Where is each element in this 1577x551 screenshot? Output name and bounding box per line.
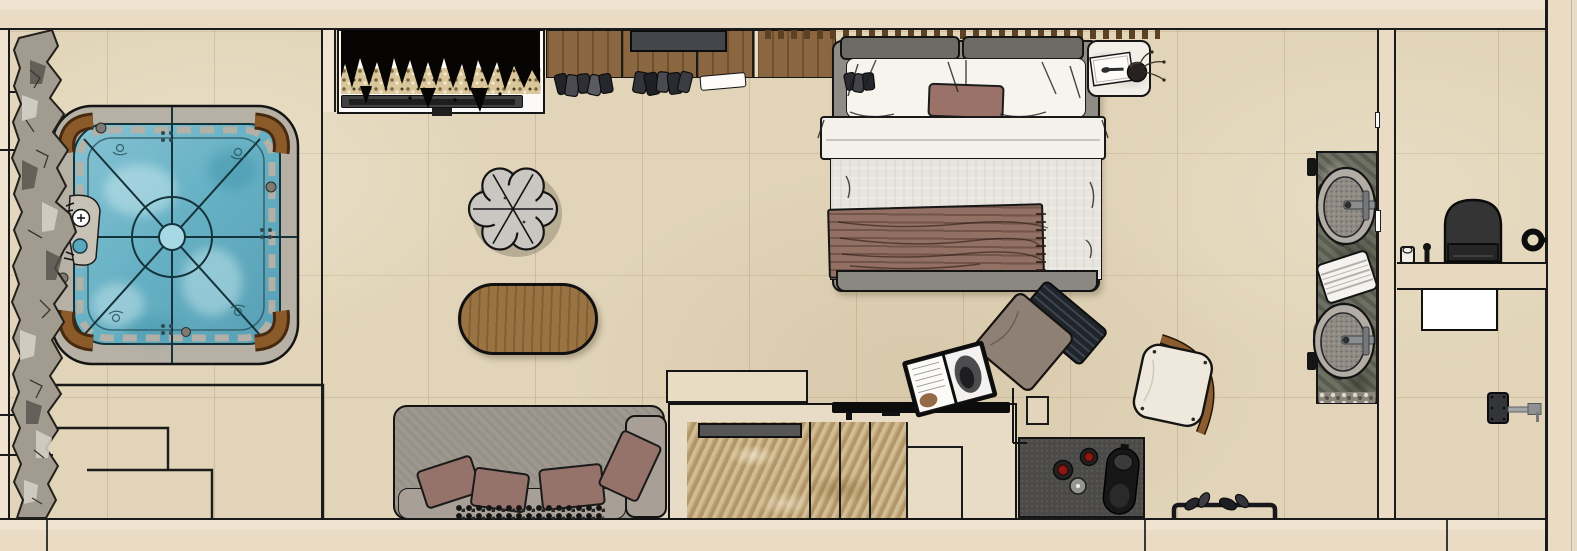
island-wall-nib [1013,388,1027,443]
vessel-sink-2 [1314,304,1375,380]
open-magazine [902,340,998,418]
nightstand-decor [1090,50,1166,85]
throw-creases [838,222,1048,269]
hot-tub [52,106,298,364]
slipper-rack [1174,491,1275,518]
flower-pouf [469,169,562,258]
shower-arm [1488,393,1541,423]
stool [1130,336,1220,434]
hanging-clothes [554,71,875,97]
toilet-brush [1423,243,1431,263]
kettle [1102,443,1141,516]
island-appliances [1013,388,1141,515]
terrace-steps [50,385,323,519]
detail-overlay [0,0,1577,551]
canister-lid [1403,247,1412,253]
desk-chair [973,280,1108,392]
towel-stack [1316,250,1378,304]
tub-center-jet [159,224,185,250]
vessel-sink-1 [1317,168,1376,246]
floor-plan-canvas [0,0,1577,551]
toilet [1445,200,1501,262]
throw-fringe [1036,214,1046,270]
door-knob [1525,232,1548,249]
planter-foliage [341,30,540,112]
island-nib-box [1027,397,1048,424]
